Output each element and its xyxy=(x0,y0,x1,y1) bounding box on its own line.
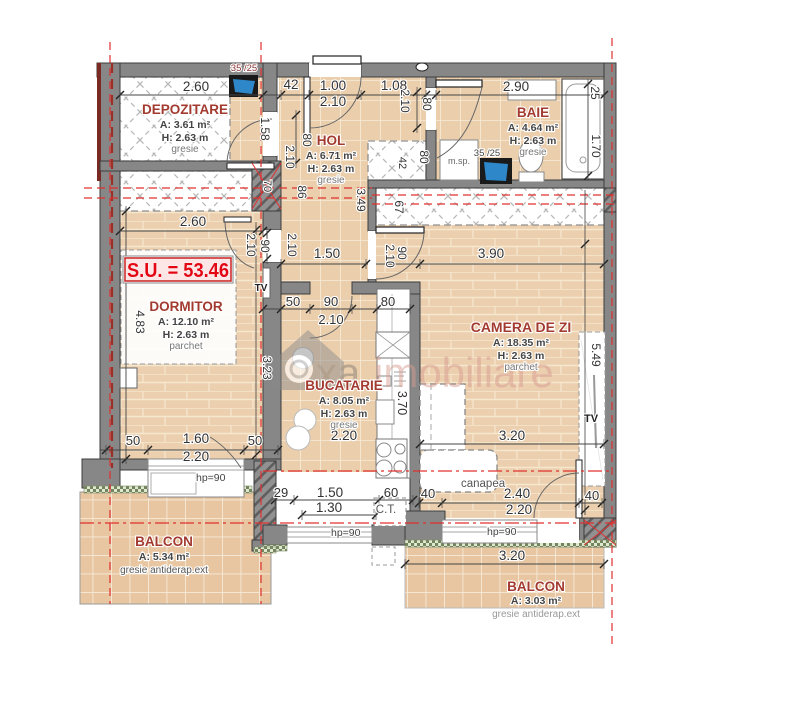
svg-text:BALCON: BALCON xyxy=(507,579,565,594)
svg-text:DORMITOR: DORMITOR xyxy=(149,299,222,314)
svg-text:A: 4.64 m²: A: 4.64 m² xyxy=(508,122,559,134)
svg-text:90: 90 xyxy=(258,239,272,253)
svg-text:2.60: 2.60 xyxy=(180,214,206,229)
svg-text:3.70: 3.70 xyxy=(395,391,409,415)
svg-text:parchet: parchet xyxy=(504,362,538,373)
svg-text:parchet: parchet xyxy=(169,341,203,352)
svg-text:2.10: 2.10 xyxy=(383,244,397,268)
svg-text:H: 2.63 m: H: 2.63 m xyxy=(321,408,368,420)
svg-text:gresie: gresie xyxy=(519,147,547,158)
svg-text:40: 40 xyxy=(421,486,435,501)
svg-text:80: 80 xyxy=(417,150,431,164)
svg-text:A: 12.10 m²: A: 12.10 m² xyxy=(158,316,215,328)
svg-text:60: 60 xyxy=(384,485,398,500)
svg-text:1.50: 1.50 xyxy=(317,485,343,500)
svg-text:A: 6.71 m²: A: 6.71 m² xyxy=(306,150,357,162)
svg-text:2.40: 2.40 xyxy=(504,486,530,501)
svg-text:1.50: 1.50 xyxy=(314,246,340,261)
svg-text:2.20: 2.20 xyxy=(506,502,532,517)
svg-text:90: 90 xyxy=(395,246,409,260)
svg-text:80: 80 xyxy=(300,133,314,147)
svg-text:50: 50 xyxy=(248,433,262,448)
svg-text:2.10: 2.10 xyxy=(283,145,297,169)
svg-text:3.49: 3.49 xyxy=(354,188,368,212)
svg-text:A: 3.61 m²: A: 3.61 m² xyxy=(160,119,211,131)
svg-text:25: 25 xyxy=(588,86,602,100)
svg-text:70: 70 xyxy=(261,180,273,192)
svg-text:H: 2.63 m: H: 2.63 m xyxy=(510,135,557,147)
svg-text:S.U. = 53.46: S.U. = 53.46 xyxy=(127,260,229,282)
svg-text:29: 29 xyxy=(274,485,288,500)
svg-text:3.20: 3.20 xyxy=(499,548,525,563)
svg-text:m.sp.: m.sp. xyxy=(448,156,470,166)
svg-text:3.90: 3.90 xyxy=(478,246,504,261)
svg-text:BALCON: BALCON xyxy=(135,534,193,549)
svg-text:A: 8.05 m²: A: 8.05 m² xyxy=(319,395,370,407)
svg-text:40: 40 xyxy=(585,488,599,503)
svg-text:2.10: 2.10 xyxy=(320,94,346,109)
svg-text:2.10: 2.10 xyxy=(285,233,299,257)
svg-text:DEPOZITARE: DEPOZITARE xyxy=(142,102,228,117)
svg-text:3.23: 3.23 xyxy=(260,356,274,380)
svg-text:gresie antiderap.ext: gresie antiderap.ext xyxy=(120,565,208,576)
svg-text:50: 50 xyxy=(126,433,140,448)
svg-text:35 /25: 35 /25 xyxy=(474,148,500,159)
svg-text:hp=90: hp=90 xyxy=(487,526,517,538)
svg-text:H: 2.63 m: H: 2.63 m xyxy=(308,163,355,175)
svg-text:HOL: HOL xyxy=(317,133,346,148)
svg-text:C.T.: C.T. xyxy=(376,504,396,516)
svg-text:67: 67 xyxy=(392,200,406,214)
svg-text:A: 18.35 m²: A: 18.35 m² xyxy=(493,337,550,349)
svg-text:gresie: gresie xyxy=(330,420,358,431)
svg-text:H: 2.63 m: H: 2.63 m xyxy=(498,350,545,362)
svg-text:TV: TV xyxy=(255,283,268,294)
svg-text:gresie antiderap.ext: gresie antiderap.ext xyxy=(492,609,580,620)
svg-text:2.60: 2.60 xyxy=(183,79,209,94)
svg-text:gresie: gresie xyxy=(171,144,199,155)
svg-text:A: 3.03 m²: A: 3.03 m² xyxy=(511,595,562,607)
svg-text:5.49: 5.49 xyxy=(589,343,603,367)
svg-text:1.30: 1.30 xyxy=(316,500,342,515)
svg-text:2.10: 2.10 xyxy=(398,89,412,113)
svg-text:H: 2.63 m: H: 2.63 m xyxy=(162,132,209,144)
svg-text:35 /25: 35 /25 xyxy=(231,63,257,74)
svg-text:4.83: 4.83 xyxy=(133,310,147,334)
svg-text:A: 5.34 m²: A: 5.34 m² xyxy=(139,551,190,563)
svg-text:2.20: 2.20 xyxy=(183,449,209,464)
svg-text:H: 2.63 m: H: 2.63 m xyxy=(163,329,210,341)
svg-text:gresie: gresie xyxy=(317,175,345,186)
svg-text:90: 90 xyxy=(324,294,338,309)
svg-text:BAIE: BAIE xyxy=(517,105,549,120)
svg-text:42: 42 xyxy=(283,77,298,92)
svg-text:1.70: 1.70 xyxy=(589,134,603,158)
svg-text:86: 86 xyxy=(295,185,309,199)
svg-text:hp=90: hp=90 xyxy=(196,472,226,484)
svg-text:80: 80 xyxy=(381,294,395,309)
svg-text:1.60: 1.60 xyxy=(183,431,209,446)
svg-text:1.00: 1.00 xyxy=(320,78,346,93)
svg-text:CAMERA DE ZI: CAMERA DE ZI xyxy=(471,319,572,335)
svg-text:TV: TV xyxy=(584,413,599,425)
svg-text:42: 42 xyxy=(396,157,408,169)
svg-text:BUCATARIE: BUCATARIE xyxy=(305,378,383,393)
svg-text:2.90: 2.90 xyxy=(503,79,529,94)
svg-text:canapea: canapea xyxy=(461,478,506,490)
svg-text:80: 80 xyxy=(420,97,434,111)
svg-text:2.10: 2.10 xyxy=(318,312,343,327)
svg-text:3.20: 3.20 xyxy=(499,428,525,443)
svg-text:1.58: 1.58 xyxy=(258,117,272,141)
svg-text:2.10: 2.10 xyxy=(244,233,258,257)
svg-text:hp=90: hp=90 xyxy=(331,527,361,539)
svg-text:50: 50 xyxy=(286,294,300,309)
